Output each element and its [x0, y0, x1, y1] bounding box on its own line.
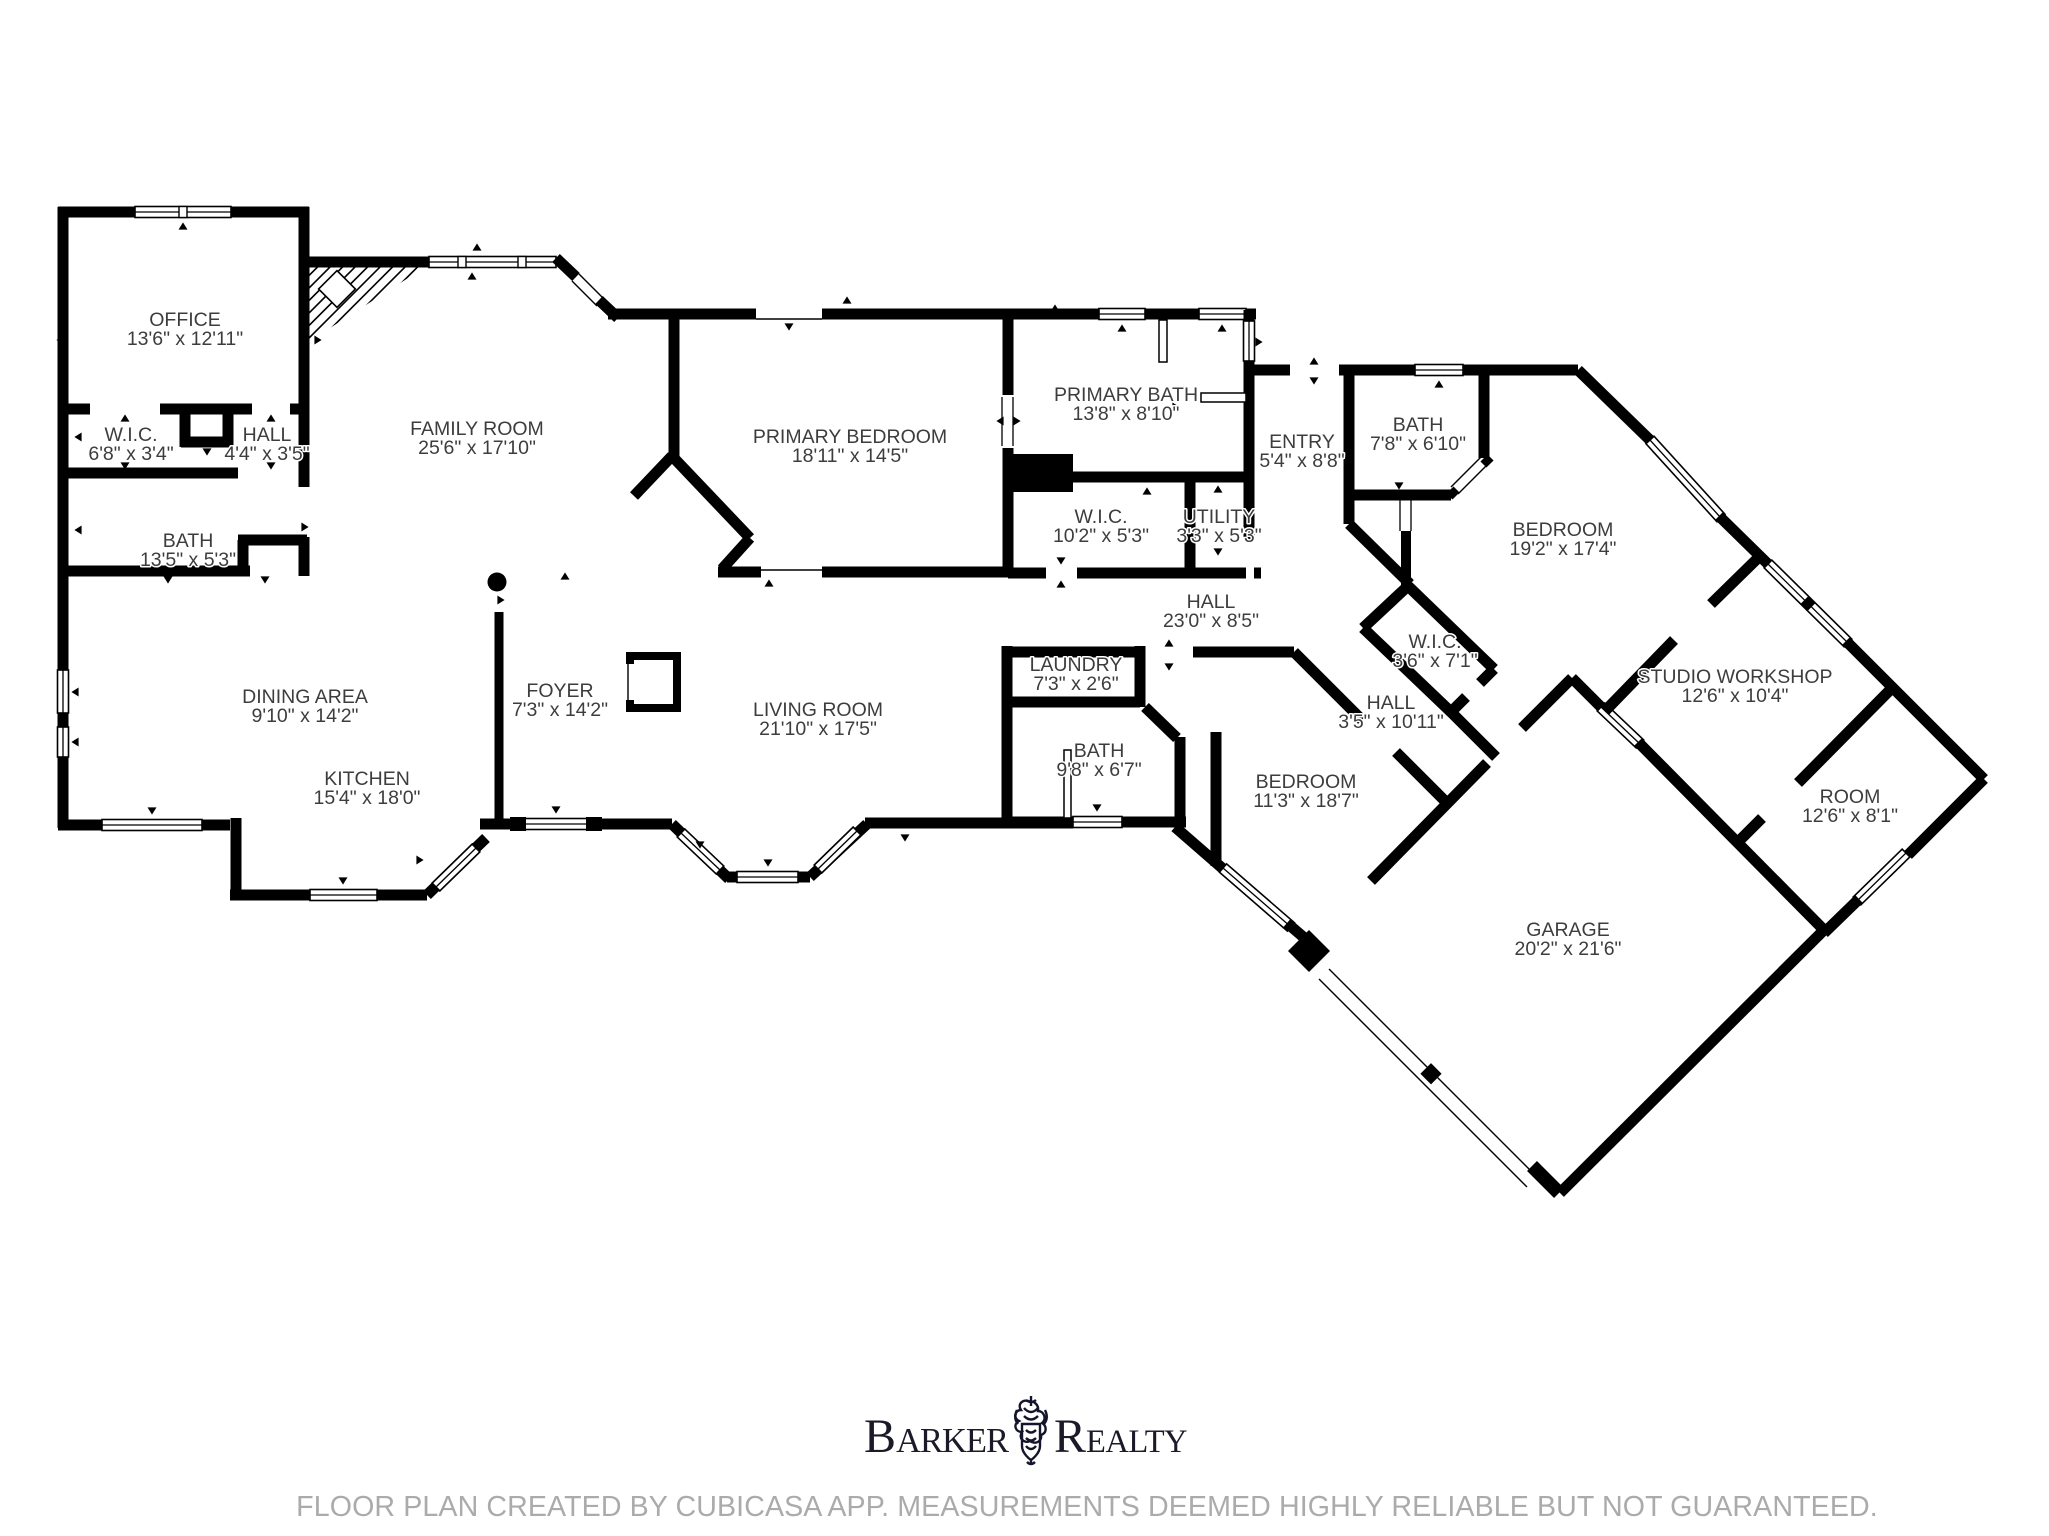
svg-text:21'10" x 17'5": 21'10" x 17'5"	[759, 718, 877, 740]
svg-text:5'4" x 8'8": 5'4" x 8'8"	[1259, 450, 1344, 472]
svg-text:9'8" x 6'7": 9'8" x 6'7"	[1056, 759, 1141, 781]
svg-text:3'6" x 7'1": 3'6" x 7'1"	[1392, 650, 1477, 672]
svg-text:7'8" x 6'10": 7'8" x 6'10"	[1370, 433, 1466, 455]
svg-text:13'8" x 8'10": 13'8" x 8'10"	[1073, 403, 1180, 425]
svg-text:FLOOR PLAN CREATED BY CUBICASA: FLOOR PLAN CREATED BY CUBICASA APP. MEAS…	[296, 1491, 1878, 1523]
svg-text:4'4" x 3'5": 4'4" x 3'5"	[224, 443, 309, 465]
svg-text:13'6" x 12'11": 13'6" x 12'11"	[127, 328, 243, 350]
svg-text:12'6" x 8'1": 12'6" x 8'1"	[1802, 805, 1898, 827]
svg-text:9'10" x 14'2": 9'10" x 14'2"	[252, 705, 359, 727]
svg-text:13'5" x 5'3": 13'5" x 5'3"	[140, 549, 236, 571]
svg-text:20'2" x 21'6": 20'2" x 21'6"	[1515, 938, 1622, 960]
svg-text:7'3" x 2'6": 7'3" x 2'6"	[1033, 673, 1118, 695]
svg-text:11'3" x 18'7": 11'3" x 18'7"	[1253, 790, 1359, 812]
svg-text:3'3" x 5'3": 3'3" x 5'3"	[1176, 525, 1261, 547]
svg-text:10'2" x 5'3": 10'2" x 5'3"	[1053, 525, 1149, 547]
svg-text:3'5" x 10'11": 3'5" x 10'11"	[1338, 711, 1444, 733]
svg-text:23'0" x 8'5": 23'0" x 8'5"	[1163, 610, 1259, 632]
svg-text:6'8" x 3'4": 6'8" x 3'4"	[88, 443, 173, 465]
svg-text:25'6" x 17'10": 25'6" x 17'10"	[418, 437, 536, 459]
svg-text:7'3" x 14'2": 7'3" x 14'2"	[512, 699, 608, 721]
svg-text:18'11" x 14'5": 18'11" x 14'5"	[792, 445, 908, 467]
svg-text:15'4" x 18'0": 15'4" x 18'0"	[314, 787, 421, 809]
svg-text:19'2" x 17'4": 19'2" x 17'4"	[1510, 538, 1617, 560]
svg-text:12'6" x 10'4": 12'6" x 10'4"	[1682, 685, 1789, 707]
